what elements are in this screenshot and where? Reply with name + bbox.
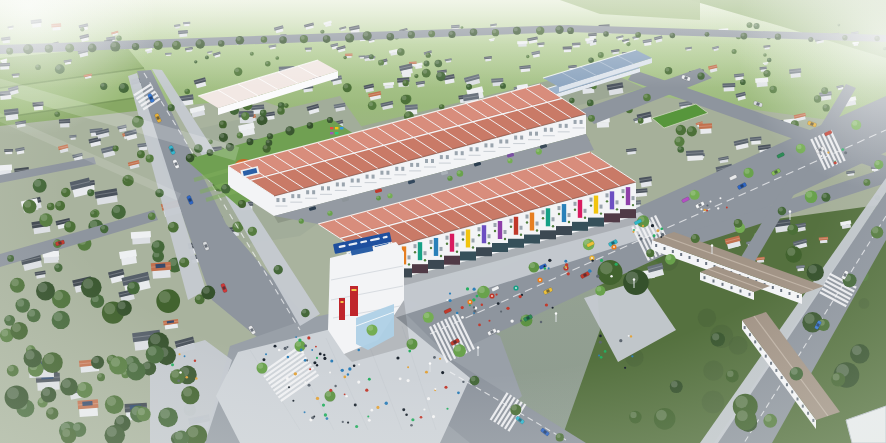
layer-atmosphere — [0, 0, 886, 443]
vignette — [0, 0, 886, 443]
aerial-development-render — [0, 0, 886, 443]
scene-canvas — [0, 0, 886, 443]
